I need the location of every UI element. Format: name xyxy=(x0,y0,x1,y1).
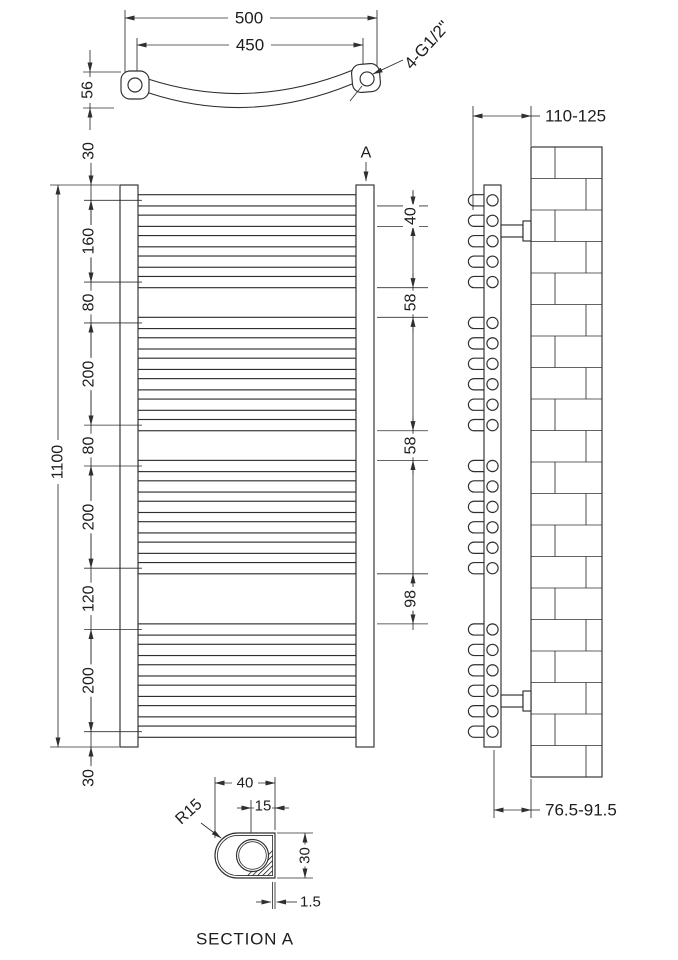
dim-text-15: 15 xyxy=(255,798,272,815)
side-rung-circle xyxy=(487,665,498,676)
side-rung-capsule xyxy=(468,460,486,471)
dim-text: 200 xyxy=(81,504,98,531)
wall-brick-pattern xyxy=(531,147,602,777)
chain-dim-label: 30 xyxy=(81,139,98,163)
chain-dim-label: 98 xyxy=(403,587,420,611)
dim-text: 120 xyxy=(81,585,98,612)
side-rung-capsule xyxy=(468,338,486,349)
dim-text: 40 xyxy=(403,207,420,225)
radius-note: R15 xyxy=(172,796,205,828)
dim-label-bow: 56 xyxy=(80,77,97,103)
side-rung-capsule xyxy=(468,317,486,328)
side-rung-circle xyxy=(487,276,498,287)
radiator-rung xyxy=(138,317,356,328)
drawing-canvas: 500 450 56 4-G1/2" xyxy=(0,0,678,960)
bracket-wall-plate xyxy=(523,221,531,241)
radiator-rung xyxy=(138,256,356,267)
chain-dim-label: 58 xyxy=(403,434,420,458)
dim-text: 80 xyxy=(81,294,98,312)
side-rung-circle xyxy=(487,542,498,553)
radiator-rung xyxy=(138,563,356,574)
side-rung-circle xyxy=(487,338,498,349)
dim-text: 80 xyxy=(81,437,98,455)
side-rung-capsule xyxy=(468,726,486,737)
radiator-rung xyxy=(138,399,356,410)
radiator-rung xyxy=(138,501,356,512)
radiator-rung xyxy=(138,726,356,737)
side-rung-capsule xyxy=(468,665,486,676)
side-rung-capsule xyxy=(468,644,486,655)
dim-label-total-height: 1100 xyxy=(50,440,67,484)
right-connection-hole xyxy=(359,71,374,86)
chain-dim-label: 40 xyxy=(403,204,420,228)
dim-text-40: 40 xyxy=(237,775,254,792)
dim-label-section-width: 40 xyxy=(232,775,258,792)
section-title: SECTION A xyxy=(196,930,294,949)
technical-drawing: 500 450 56 4-G1/2" xyxy=(0,0,678,960)
dim-text-450: 450 xyxy=(236,36,264,55)
side-rung-capsule xyxy=(468,542,486,553)
radiator-rung xyxy=(138,481,356,492)
radiator-rung xyxy=(138,644,356,655)
side-rung-capsule xyxy=(468,215,486,226)
dim-text-1100: 1100 xyxy=(50,445,67,480)
connection-note-text: 4-G1/2" xyxy=(401,17,454,73)
side-rung-capsule xyxy=(468,276,486,287)
side-rung-circle xyxy=(487,563,498,574)
chain-dim-label: 30 xyxy=(81,766,98,790)
dim-text: 160 xyxy=(81,228,98,255)
side-rung-capsule xyxy=(468,379,486,390)
side-rung-capsule xyxy=(468,256,486,267)
side-rung-capsule xyxy=(468,481,486,492)
radiator-rung xyxy=(138,522,356,533)
bracket-arm xyxy=(501,225,523,237)
side-rung-circle xyxy=(487,236,498,247)
side-rung-circle xyxy=(487,644,498,655)
left-connection-hole xyxy=(128,78,142,92)
side-rung-capsule xyxy=(468,706,486,717)
side-rung-circle xyxy=(487,317,498,328)
radiator-rung xyxy=(138,542,356,553)
radiator-rung xyxy=(138,195,356,206)
radiator-rung xyxy=(138,358,356,369)
side-rung-capsule xyxy=(468,420,486,431)
curved-rail-top-edge xyxy=(148,70,353,94)
radiator-rung xyxy=(138,420,356,431)
bracket-arm xyxy=(501,695,523,707)
leader-arrow xyxy=(201,823,221,838)
side-rung-circle xyxy=(487,501,498,512)
dim-text-76-91: 76.5-91.5 xyxy=(545,801,617,820)
side-rung-circle xyxy=(487,195,498,206)
dim-text-1-5: 1.5 xyxy=(300,894,321,911)
dim-text: 200 xyxy=(81,361,98,388)
side-view: 110-125 76.5-91.5 xyxy=(468,106,616,820)
front-rungs xyxy=(138,195,356,738)
side-rung-capsule xyxy=(468,501,486,512)
connection-note: 4-G1/2" xyxy=(401,17,454,73)
dim-label-overall-width: 500 xyxy=(228,9,270,28)
right-dimension-chain: 40585898 xyxy=(377,190,428,630)
side-rung-capsule xyxy=(468,685,486,696)
side-rung-circle xyxy=(487,215,498,226)
tube-bore-outer xyxy=(237,840,269,872)
side-rung-circle xyxy=(487,460,498,471)
chain-dim-label: 200 xyxy=(81,501,98,533)
chain-dim-label: 200 xyxy=(81,358,98,390)
dim-label-inner-width: 450 xyxy=(229,36,271,55)
dim-text: 30 xyxy=(81,142,98,160)
section-marker-text: A xyxy=(361,145,372,162)
side-rung-capsule xyxy=(468,195,486,206)
side-rung-capsule xyxy=(468,358,486,369)
side-rung-circle xyxy=(487,481,498,492)
side-rung-capsule xyxy=(468,399,486,410)
side-rung-circle xyxy=(487,522,498,533)
dim-text-56: 56 xyxy=(80,81,97,99)
bracket-wall-plate xyxy=(523,691,531,711)
radiator-rung xyxy=(138,236,356,247)
side-rung-capsule xyxy=(468,624,486,635)
radiator-rung xyxy=(138,276,356,287)
side-rungs xyxy=(468,195,486,738)
dim-text: 58 xyxy=(403,294,420,312)
side-rung-capsule xyxy=(468,236,486,247)
chain-dim-label: 58 xyxy=(403,291,420,315)
dim-text: 200 xyxy=(81,667,98,694)
wall-brackets xyxy=(501,221,531,711)
top-view: 500 450 56 4-G1/2" xyxy=(80,9,454,131)
chain-dim-label: 120 xyxy=(81,583,98,615)
chain-dim-label: 80 xyxy=(81,434,98,458)
chain-dim-label: 80 xyxy=(81,291,98,315)
side-rung-circle xyxy=(487,399,498,410)
dim-text: 98 xyxy=(403,590,420,608)
side-rung-circle xyxy=(487,379,498,390)
section-a-detail: 40 15 30 1.5 R15 xyxy=(172,775,320,949)
chain-dim-label: 200 xyxy=(81,664,98,696)
dim-text-500: 500 xyxy=(235,9,263,28)
dim-text-r15: R15 xyxy=(172,796,205,828)
radiator-rung xyxy=(138,706,356,717)
dim-label-hole-offset: 15 xyxy=(254,798,272,815)
side-rung-circle xyxy=(487,706,498,717)
front-view: A 1100 30160802008020012020030 40585898 xyxy=(50,139,429,790)
side-rung-circle xyxy=(487,358,498,369)
side-rung-circle xyxy=(487,685,498,696)
radiator-rung xyxy=(138,460,356,471)
right-vertical-rail xyxy=(356,185,374,747)
radiator-rung xyxy=(138,379,356,390)
radiator-rung xyxy=(138,685,356,696)
dim-text: 30 xyxy=(81,769,98,787)
side-rung-circle xyxy=(487,420,498,431)
radiator-rung xyxy=(138,624,356,635)
side-rung-circle xyxy=(487,726,498,737)
right-end-fitting-group xyxy=(351,63,381,93)
side-rung-circle xyxy=(487,624,498,635)
side-rung-circle xyxy=(487,256,498,267)
radiator-rung xyxy=(138,665,356,676)
dim-text: 58 xyxy=(403,437,420,455)
side-rung-capsule xyxy=(468,563,486,574)
radiator-rung xyxy=(138,338,356,349)
dim-text-30: 30 xyxy=(297,847,314,864)
dim-text-110-125: 110-125 xyxy=(545,107,606,126)
radiator-rung xyxy=(138,215,356,226)
side-rung-capsule xyxy=(468,522,486,533)
dim-label-section-height: 30 xyxy=(297,845,314,867)
chain-dim-label: 160 xyxy=(81,225,98,257)
